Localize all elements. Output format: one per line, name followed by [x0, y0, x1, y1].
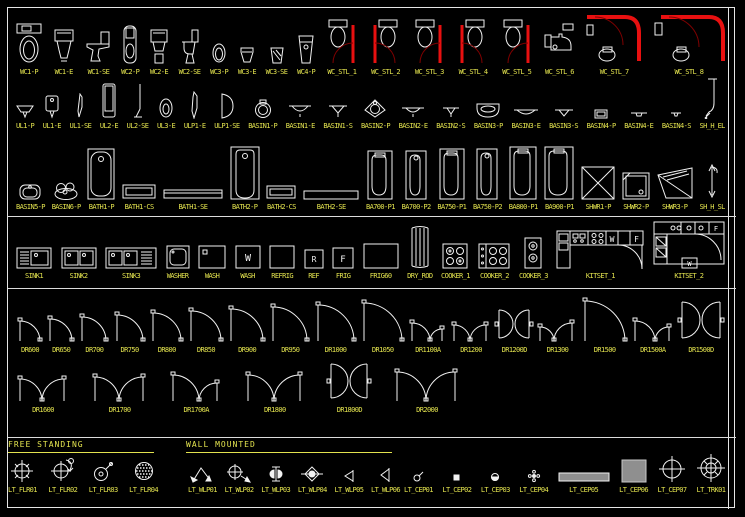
shwr3-glyph: [657, 166, 693, 200]
ul1e-glyph: [44, 95, 60, 119]
block-label: SINK1: [25, 272, 43, 280]
doorm-glyph: [631, 313, 675, 343]
stl-glyph: [412, 19, 446, 65]
stl-glyph: [500, 19, 534, 65]
block-wash[interactable]: WWASH: [235, 245, 261, 280]
block-label: WASHER: [167, 272, 189, 280]
block-label: COOKER_3: [519, 272, 548, 280]
block-label: WC1-SE: [88, 68, 110, 76]
flr2-glyph: [50, 457, 76, 483]
block-wc-stl-1[interactable]: WC_STL_1: [325, 19, 359, 76]
block-lt-cep05[interactable]: LT_CEP05: [558, 471, 610, 494]
block-cooker-3[interactable]: COOKER_3: [519, 237, 548, 280]
doorm-glyph: [91, 369, 149, 403]
sink2-glyph: [61, 247, 97, 269]
svg-text:R: R: [311, 255, 316, 264]
block-wc2-p[interactable]: WC2-P: [121, 25, 139, 76]
doorm-glyph: [408, 315, 448, 343]
block-dr1200d[interactable]: DR1200D: [494, 305, 534, 354]
bath2cs-glyph: [266, 182, 296, 200]
block-wc3-e[interactable]: WC3-E: [238, 47, 256, 76]
doord-glyph: [494, 305, 534, 343]
doorm-glyph: [393, 364, 461, 403]
block-basin3-e[interactable]: BASIN3-E: [511, 107, 540, 130]
block-label: LT_CEP03: [481, 486, 510, 494]
block-label: DR750: [121, 346, 139, 354]
block-label: SH_H_SL: [699, 203, 724, 211]
block-label: LT_CEP01: [404, 486, 433, 494]
block-label: WC1-P: [20, 68, 38, 76]
cad-drawing-canvas[interactable]: WC1-PWC1-EWC1-SEWC2-PWC2-EWC2-SEWC3-PWC3…: [0, 0, 745, 517]
block-ba700-p2[interactable]: BA700-P2: [402, 150, 431, 211]
block-label: LT_WLP05: [334, 486, 363, 494]
block-label: BATH2-P: [232, 203, 257, 211]
block-dr700[interactable]: DR700: [78, 307, 110, 354]
block-label: BASIN4-P: [587, 122, 616, 130]
block-basin4-e[interactable]: BASIN4-E: [624, 111, 653, 130]
block-lt-cep04[interactable]: LT_CEP04: [519, 469, 548, 494]
block-label: WC_STL_3: [415, 68, 444, 76]
wash1-glyph: [198, 245, 226, 269]
bs2p-glyph: [364, 99, 386, 119]
block-label: LT_WLP03: [261, 486, 290, 494]
ul1se-glyph: [75, 93, 85, 119]
row-bath-shower: BASIN5-PBASIN6-PBATH1-PBATH1-CSBATH1-SEB…: [16, 145, 725, 211]
block-ba750-p1[interactable]: BA750-P1: [437, 148, 466, 211]
kit2-glyph: FW: [653, 221, 725, 269]
block-label: UL1-P: [16, 122, 34, 130]
block-label: UL1-SE: [70, 122, 92, 130]
kit1-glyph: WF: [556, 225, 644, 269]
section-header-wall-mounted: WALL MOUNTED: [186, 440, 392, 453]
block-label: LT_WLP02: [225, 486, 254, 494]
block-label: BATH1-SE: [178, 203, 207, 211]
block-label: DR1600: [32, 406, 54, 414]
cep1-glyph: [412, 471, 424, 483]
block-lt-cep06[interactable]: LT_CEP06: [619, 459, 648, 494]
door-glyph: [78, 307, 110, 343]
bav-glyph: [544, 146, 574, 200]
ref-glyph: R: [304, 249, 324, 269]
block-wc-stl-8[interactable]: WC_STL_8: [653, 13, 725, 76]
block-shwr1-p[interactable]: SHWR1-P: [581, 166, 615, 211]
svg-text:W: W: [245, 253, 252, 264]
block-label: DR1700: [109, 406, 131, 414]
block-wc1-p[interactable]: WC1-P: [16, 23, 42, 76]
block-wc-stl-6[interactable]: WC_STL_6: [543, 23, 575, 76]
block-ul2-se[interactable]: UL2-SE: [127, 83, 149, 130]
block-label: BASIN1-P: [248, 122, 277, 130]
block-lt-flr04[interactable]: LT_FLR04: [129, 459, 158, 494]
block-label: DR800: [158, 346, 176, 354]
block-frig60[interactable]: FRIG60: [363, 243, 399, 280]
block-ulp1-se[interactable]: ULP1-SE: [214, 93, 239, 130]
block-label: WASH: [240, 272, 254, 280]
sink1-glyph: [16, 247, 52, 269]
bath1p-glyph: [87, 148, 115, 200]
doorm-glyph: [169, 367, 223, 403]
block-label: SINK2: [69, 272, 87, 280]
cook2-glyph: [478, 243, 510, 269]
svg-text:F: F: [340, 255, 345, 265]
ulp1e-glyph: [190, 91, 200, 119]
block-label: BA700-P1: [366, 203, 395, 211]
block-label: LT_WLP01: [188, 486, 217, 494]
wc3_se-glyph: [269, 47, 285, 65]
bs6p-glyph: [53, 182, 79, 200]
block-label: BASIN2-E: [399, 122, 428, 130]
block-sink1[interactable]: SINK1: [16, 247, 52, 280]
block-ba700-p1[interactable]: BA700-P1: [366, 150, 395, 211]
block-sh-h-el[interactable]: SH_H_EL: [700, 77, 725, 130]
block-refrig[interactable]: REFRIG: [269, 245, 295, 280]
block-bath2-se[interactable]: BATH2-SE: [303, 188, 359, 211]
block-label: DR1500A: [640, 346, 665, 354]
cook3-glyph: [524, 237, 542, 269]
block-ba750-p2[interactable]: BA750-P2: [473, 148, 502, 211]
block-label: DR850: [197, 346, 215, 354]
block-dr650[interactable]: DR650: [46, 309, 76, 354]
doord-glyph: [326, 359, 372, 403]
block-dr1500a[interactable]: DR1500A: [631, 313, 675, 354]
block-lt-trk01[interactable]: LT_TRK01: [696, 453, 726, 494]
block-wc2-e[interactable]: WC2-E: [149, 29, 169, 76]
block-label: BA700-P2: [402, 203, 431, 211]
block-label: DR1100A: [415, 346, 440, 354]
block-ul3-e[interactable]: UL3-E: [157, 97, 175, 130]
block-lt-wlp05[interactable]: LT_WLP05: [334, 469, 363, 494]
block-label: LT_WLP06: [371, 486, 400, 494]
block-label: SHWR2-P: [623, 203, 648, 211]
door-glyph: [187, 301, 225, 343]
wlp2-glyph: [226, 463, 252, 483]
block-label: BASIN2-S: [436, 122, 465, 130]
block-basin3-p[interactable]: BASIN3-P: [474, 103, 503, 130]
block-label: LT_CEP07: [658, 486, 687, 494]
cep4-glyph: [527, 469, 541, 483]
block-basin1-e[interactable]: BASIN1-E: [286, 103, 315, 130]
block-label: WC_STL_6: [545, 68, 574, 76]
door-glyph: [227, 299, 267, 343]
block-label: WC2-SE: [179, 68, 201, 76]
block-label: BASIN4-S: [662, 122, 691, 130]
block-label: WC3-P: [210, 68, 228, 76]
block-kitset-2[interactable]: FWKITSET_2: [653, 221, 725, 280]
block-label: DR1200: [460, 346, 482, 354]
block-label: LT_FLR04: [129, 486, 158, 494]
wlp6-glyph: [379, 467, 393, 483]
block-wc1-se[interactable]: WC1-SE: [85, 31, 111, 76]
block-sink2[interactable]: SINK2: [61, 247, 97, 280]
block-wc-stl-2[interactable]: WC_STL_2: [369, 19, 403, 76]
wlp5-glyph: [342, 469, 356, 483]
block-bath2-cs[interactable]: BATH2-CS: [266, 182, 296, 211]
block-basin5-p[interactable]: BASIN5-P: [16, 184, 45, 211]
block-sh-h-sl[interactable]: SH_H_SL: [699, 162, 724, 211]
block-label: WC_STL_2: [371, 68, 400, 76]
row-urinal-basin: UL1-PUL1-EUL1-SEUL2-EUL2-SEUL3-EULP1-EUL…: [16, 76, 725, 130]
block-wc-stl-3[interactable]: WC_STL_3: [412, 19, 446, 76]
block-label: WASH: [205, 272, 219, 280]
washer-glyph: [166, 245, 190, 269]
bs3e-glyph: [514, 107, 538, 119]
bs3s-glyph: [555, 107, 573, 119]
door-glyph: [269, 297, 311, 343]
block-ba900-p1[interactable]: BA900-P1: [544, 146, 574, 211]
block-lt-wlp06[interactable]: LT_WLP06: [371, 467, 400, 494]
block-dr1600[interactable]: DR1600: [16, 371, 70, 414]
block-dr2000[interactable]: DR2000: [393, 364, 461, 414]
block-dr600[interactable]: DR600: [16, 311, 44, 354]
block-dr800[interactable]: DR800: [149, 303, 185, 354]
block-label: SHWR1-P: [586, 203, 611, 211]
block-wc-stl-7[interactable]: WC_STL_7: [585, 13, 643, 76]
bs4s-glyph: [671, 111, 681, 119]
ul3e-glyph: [158, 97, 174, 119]
wc_e-glyph: [52, 29, 76, 65]
block-label: WC1-E: [55, 68, 73, 76]
block-ul2-e[interactable]: UL2-E: [100, 83, 118, 130]
block-label: UL2-SE: [127, 122, 149, 130]
block-wc-stl-4[interactable]: WC_STL_4: [456, 19, 490, 76]
block-dr850[interactable]: DR850: [187, 301, 225, 354]
block-shwr2-p[interactable]: SHWR2-P: [622, 170, 650, 211]
bs1p-glyph: [253, 99, 273, 119]
bs4p-glyph: [594, 109, 608, 119]
block-wash[interactable]: WASH: [198, 245, 226, 280]
block-dry-rod[interactable]: DRY_ROD: [407, 225, 432, 280]
block-label: WC2-E: [150, 68, 168, 76]
block-dr1500[interactable]: DR1500: [581, 291, 629, 354]
block-label: COOKER_1: [441, 272, 470, 280]
block-basin3-s[interactable]: BASIN3-S: [549, 107, 578, 130]
block-label: DR1800: [264, 406, 286, 414]
block-lt-cep03[interactable]: LT_CEP03: [481, 471, 510, 494]
block-basin4-s[interactable]: BASIN4-S: [662, 111, 691, 130]
block-basin6-p[interactable]: BASIN6-P: [52, 182, 81, 211]
block-ul1-e[interactable]: UL1-E: [43, 95, 61, 130]
flr3-glyph: [92, 461, 114, 483]
block-label: COOKER_2: [480, 272, 509, 280]
block-ulp1-e[interactable]: ULP1-E: [184, 91, 206, 130]
block-dr1050[interactable]: DR1050: [360, 293, 406, 354]
block-bath1-p[interactable]: BATH1-P: [87, 148, 115, 211]
block-dr1700a[interactable]: DR1700A: [169, 367, 223, 414]
block-lt-cep07[interactable]: LT_CEP07: [658, 455, 687, 494]
lighting-section: FREE STANDING WALL MOUNTED LT_FLR01LT_FL…: [0, 440, 745, 502]
block-basin2-p[interactable]: BASIN2-P: [361, 99, 390, 130]
block-wc4-p[interactable]: WC4-P: [297, 35, 315, 76]
block-label: BATH1-CS: [125, 203, 154, 211]
flr1-glyph: [10, 459, 34, 483]
block-bath1-cs[interactable]: BATH1-CS: [122, 180, 156, 211]
block-label: LT_CEP04: [519, 486, 548, 494]
block-label: DR1800D: [337, 406, 362, 414]
block-cooker-2[interactable]: COOKER_2: [478, 243, 510, 280]
block-label: BASIN4-E: [624, 122, 653, 130]
wc_p-glyph: [16, 23, 42, 65]
block-label: BASIN1-S: [323, 122, 352, 130]
shwr1-glyph: [581, 166, 615, 200]
block-label: BASIN5-P: [16, 203, 45, 211]
block-label: DR2000: [416, 406, 438, 414]
cook1-glyph: [442, 243, 468, 269]
cep6-glyph: [621, 459, 647, 483]
bath2se-glyph: [303, 188, 359, 200]
block-lt-cep02[interactable]: LT_CEP02: [442, 473, 471, 494]
block-ul1-p[interactable]: UL1-P: [16, 105, 34, 130]
wc3_p-glyph: [211, 41, 227, 65]
trk1-glyph: [696, 453, 726, 483]
block-basin4-p[interactable]: BASIN4-P: [587, 109, 616, 130]
block-label: FRIG60: [370, 272, 392, 280]
block-shwr3-p[interactable]: SHWR3-P: [657, 166, 693, 211]
wc_se-glyph: [85, 31, 111, 65]
block-lt-cep01[interactable]: LT_CEP01: [404, 471, 433, 494]
stl-glyph: [369, 19, 403, 65]
block-label: REF: [308, 272, 319, 280]
block-label: WC_STL_8: [674, 68, 703, 76]
group-wall-mounted-lights: LT_WLP01LT_WLP02LT_WLP03LT_WLP04LT_WLP05…: [188, 456, 400, 494]
block-lt-flr02[interactable]: LT_FLR02: [48, 457, 77, 494]
block-lt-wlp03[interactable]: LT_WLP03: [261, 465, 290, 494]
block-label: BA900-P1: [545, 203, 574, 211]
block-sink3[interactable]: SINK3: [105, 247, 157, 280]
block-label: DR1700A: [184, 406, 209, 414]
block-dr1200[interactable]: DR1200: [450, 317, 492, 354]
block-label: BATH1-P: [89, 203, 114, 211]
block-lt-flr03[interactable]: LT_FLR03: [89, 461, 118, 494]
wlp4-glyph: [300, 465, 324, 483]
block-bath2-p[interactable]: BATH2-P: [230, 146, 260, 211]
block-label: LT_CEP05: [569, 486, 598, 494]
block-label: BASIN1-E: [286, 122, 315, 130]
block-label: KITSET_2: [674, 272, 703, 280]
block-lt-wlp01[interactable]: LT_WLP01: [188, 465, 217, 494]
block-label: BA750-P1: [437, 203, 466, 211]
stl7-glyph: [585, 13, 643, 65]
block-label: WC_STL_4: [459, 68, 488, 76]
block-ul1-se[interactable]: UL1-SE: [70, 93, 92, 130]
stl8-glyph: [653, 13, 725, 65]
frig60-glyph: [363, 243, 399, 269]
block-dr1800d[interactable]: DR1800D: [326, 359, 372, 414]
row-wc-blocks: WC1-PWC1-EWC1-SEWC2-PWC2-EWC2-SEWC3-PWC3…: [16, 12, 725, 76]
block-dr1700[interactable]: DR1700: [91, 369, 149, 414]
block-lt-flr01[interactable]: LT_FLR01: [8, 459, 37, 494]
block-dr750[interactable]: DR750: [113, 305, 147, 354]
door-glyph: [360, 293, 406, 343]
block-label: SHWR3-P: [662, 203, 687, 211]
block-label: WC3-E: [238, 68, 256, 76]
block-kitset-1[interactable]: WFKITSET_1: [556, 225, 644, 280]
block-label: UL1-E: [43, 122, 61, 130]
doorm-glyph: [536, 315, 578, 343]
doord-glyph: [677, 297, 725, 343]
block-label: LT_FLR03: [89, 486, 118, 494]
bs1s-glyph: [329, 103, 347, 119]
block-label: BASIN3-S: [549, 122, 578, 130]
block-wc-stl-5[interactable]: WC_STL_5: [500, 19, 534, 76]
block-basin1-p[interactable]: BASIN1-P: [248, 99, 277, 130]
block-label: ULP1-SE: [214, 122, 239, 130]
ulp1se-glyph: [219, 93, 235, 119]
door-glyph: [581, 291, 629, 343]
block-basin2-e[interactable]: BASIN2-E: [399, 105, 428, 130]
bs3p-glyph: [476, 103, 500, 119]
block-lt-wlp04[interactable]: LT_WLP04: [298, 465, 327, 494]
dryrod-glyph: [409, 225, 431, 269]
block-label: DR900: [238, 346, 256, 354]
shhsl-glyph: [705, 162, 719, 200]
block-label: BA800-P1: [509, 203, 538, 211]
block-dr1100a[interactable]: DR1100A: [408, 315, 448, 354]
block-label: BASIN2-P: [361, 122, 390, 130]
stl6-glyph: [543, 23, 575, 65]
block-ref[interactable]: RREF: [304, 249, 324, 280]
block-dr1300[interactable]: DR1300: [536, 315, 578, 354]
block-label: DR1500: [594, 346, 616, 354]
block-label: LT_TRK01: [696, 486, 725, 494]
bav-glyph: [367, 150, 393, 200]
block-label: ULP1-E: [184, 122, 206, 130]
frig-glyph: F: [332, 247, 354, 269]
block-label: LT_CEP02: [442, 486, 471, 494]
block-washer[interactable]: WASHER: [166, 245, 190, 280]
block-label: BA750-P2: [473, 203, 502, 211]
bav-glyph: [476, 148, 498, 200]
block-wc3-p[interactable]: WC3-P: [210, 41, 228, 76]
bs4e-glyph: [631, 111, 647, 119]
block-wc1-e[interactable]: WC1-E: [52, 29, 76, 76]
block-ba800-p1[interactable]: BA800-P1: [509, 146, 538, 211]
block-label: LT_CEP06: [619, 486, 648, 494]
block-label: WC_STL_5: [502, 68, 531, 76]
block-dr1000[interactable]: DR1000: [314, 295, 358, 354]
block-dr1500d[interactable]: DR1500D: [677, 297, 725, 354]
block-dr950[interactable]: DR950: [269, 297, 311, 354]
block-bath1-se[interactable]: BATH1-SE: [163, 186, 223, 211]
block-wc3-se[interactable]: WC3-SE: [266, 47, 288, 76]
block-label: LT_FLR02: [48, 486, 77, 494]
block-dr900[interactable]: DR900: [227, 299, 267, 354]
row-doors-1: DR600DR650DR700DR750DR800DR850DR900DR950…: [16, 290, 725, 354]
block-label: SINK3: [122, 272, 140, 280]
block-label: BASIN6-P: [52, 203, 81, 211]
wlp1-glyph: [190, 465, 214, 483]
block-label: WC2-P: [121, 68, 139, 76]
door-glyph: [149, 303, 185, 343]
svg-text:W: W: [610, 235, 615, 244]
block-cooker-1[interactable]: COOKER_1: [441, 243, 470, 280]
wc4_p-glyph: [297, 35, 315, 65]
block-basin2-s[interactable]: BASIN2-S: [436, 105, 465, 130]
bath2p-glyph: [230, 146, 260, 200]
group-ceiling-lights: LT_CEP01LT_CEP02LT_CEP03LT_CEP04LT_CEP05…: [404, 456, 726, 494]
block-frig[interactable]: FFRIG: [332, 247, 354, 280]
block-label: SH_H_EL: [700, 122, 725, 130]
refrig-glyph: [269, 245, 295, 269]
block-wc2-se[interactable]: WC2-SE: [179, 29, 201, 76]
bs5p-glyph: [19, 184, 41, 200]
block-label: DR1500D: [688, 346, 713, 354]
block-label: WC4-P: [297, 68, 315, 76]
block-basin1-s[interactable]: BASIN1-S: [323, 103, 352, 130]
block-lt-wlp02[interactable]: LT_WLP02: [225, 463, 254, 494]
flr4-glyph: [132, 459, 156, 483]
block-dr1800[interactable]: DR1800: [244, 367, 306, 414]
row-kitchen-blocks: SINK1SINK2SINK3WASHERWASHWWASHREFRIGRREF…: [16, 220, 725, 280]
